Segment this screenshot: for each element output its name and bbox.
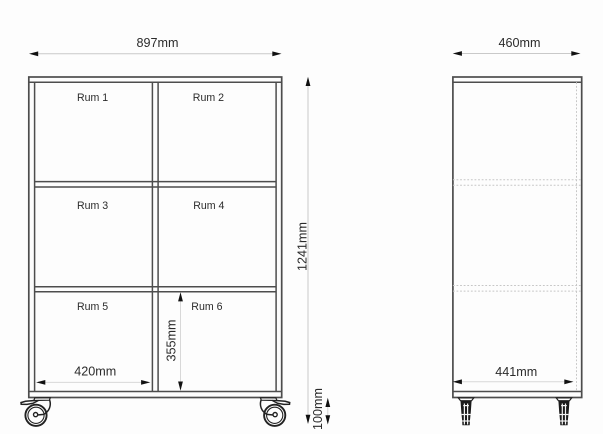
svg-text:460mm: 460mm <box>499 36 541 50</box>
svg-text:Rum 3: Rum 3 <box>77 200 108 212</box>
svg-text:420mm: 420mm <box>74 364 116 378</box>
svg-text:Rum 4: Rum 4 <box>193 200 224 212</box>
svg-text:897mm: 897mm <box>137 36 179 50</box>
svg-text:Rum 1: Rum 1 <box>77 92 108 104</box>
svg-text:355mm: 355mm <box>165 320 179 362</box>
svg-text:Rum 2: Rum 2 <box>193 92 224 104</box>
svg-text:Rum 6: Rum 6 <box>191 301 222 313</box>
svg-text:Rum 5: Rum 5 <box>77 301 108 313</box>
svg-text:100mm: 100mm <box>311 388 325 430</box>
svg-text:1241mm: 1241mm <box>296 222 310 271</box>
svg-text:441mm: 441mm <box>495 365 537 379</box>
